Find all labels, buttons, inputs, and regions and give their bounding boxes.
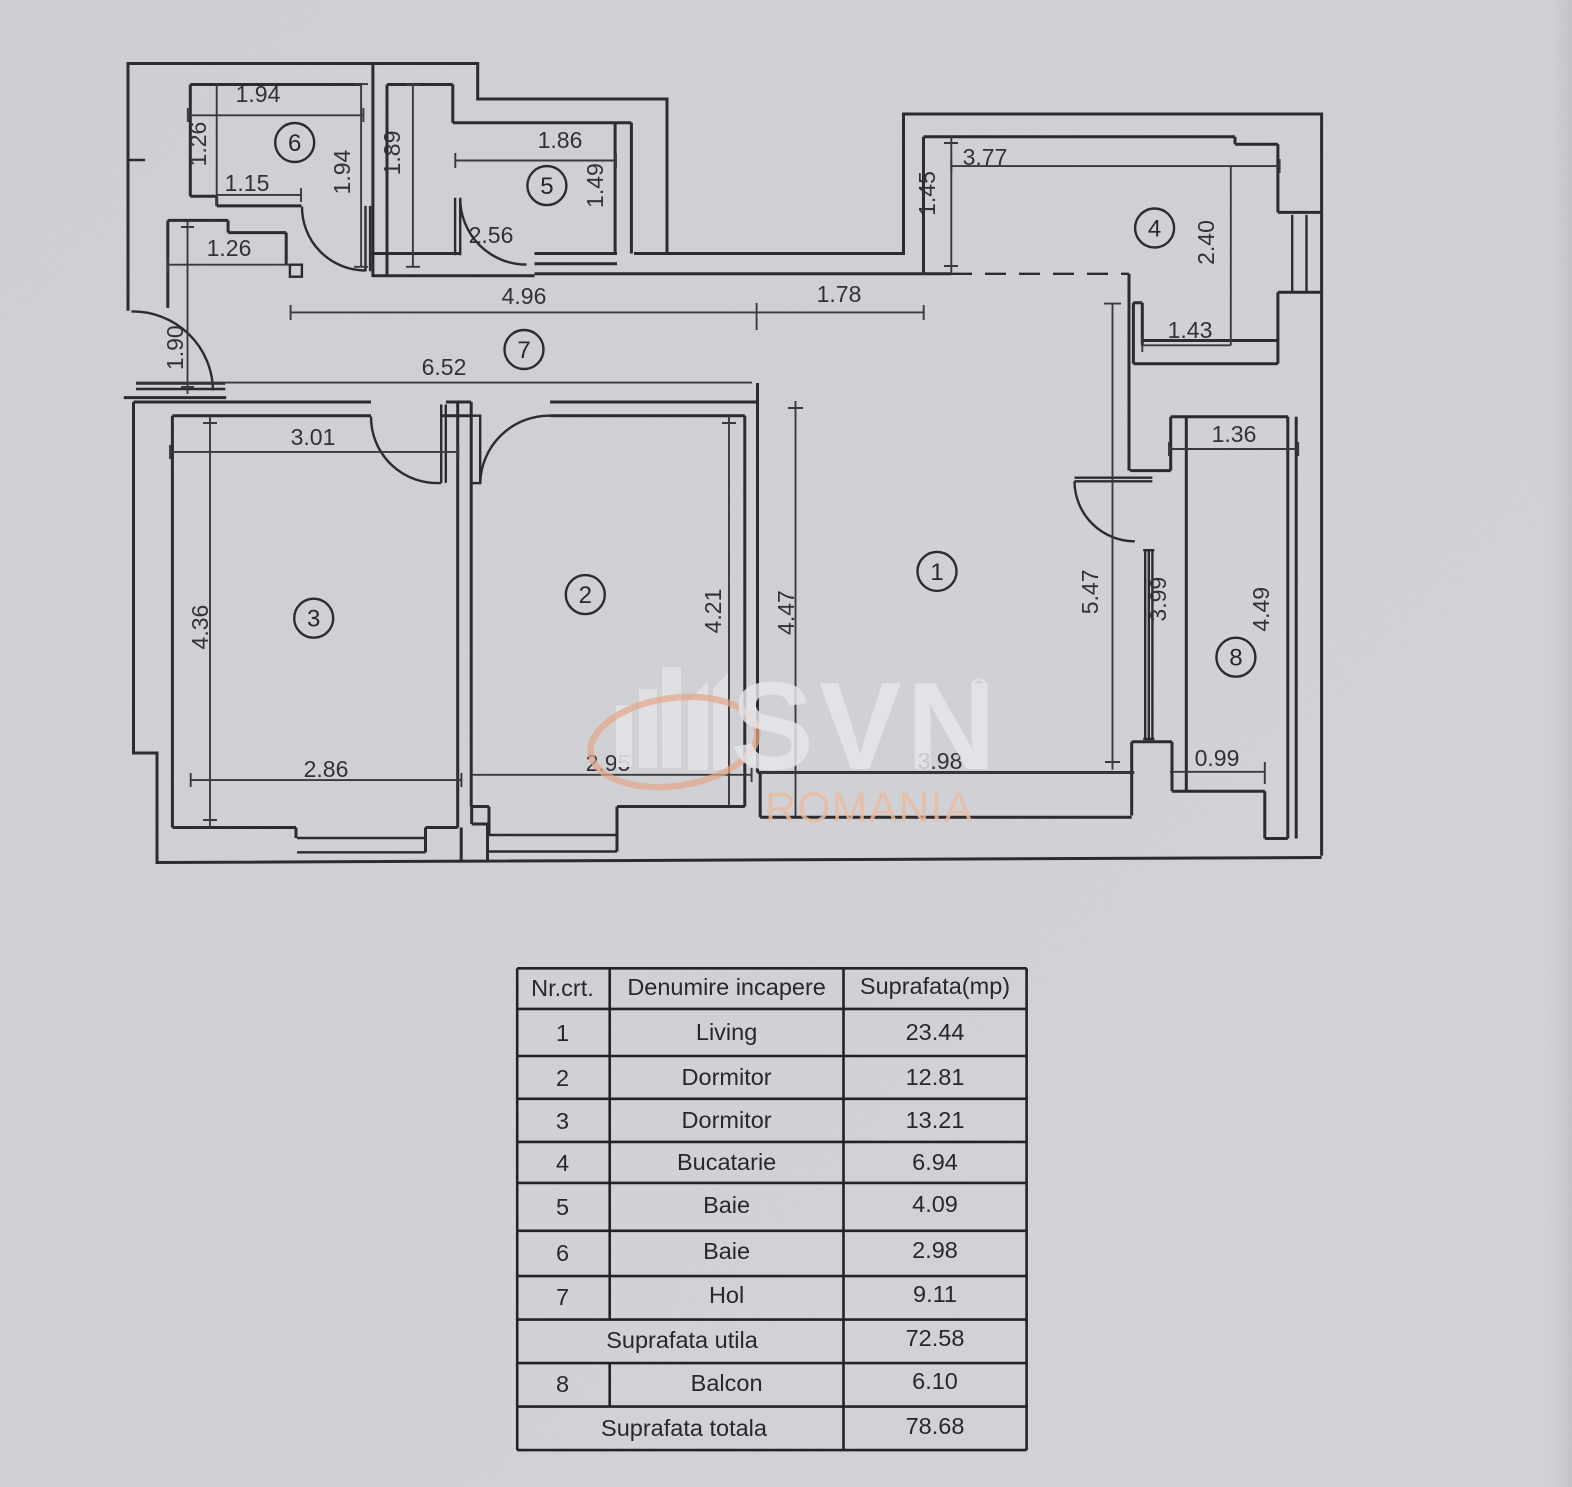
svg-text:12.81: 12.81 [906,1064,965,1090]
svg-text:Dormitor: Dormitor [682,1064,772,1090]
svg-text:2.86: 2.86 [304,756,349,782]
svg-text:5.47: 5.47 [1077,570,1103,615]
svg-text:Living: Living [696,1019,757,1045]
svg-text:6: 6 [556,1240,569,1266]
svg-text:4.96: 4.96 [502,283,547,309]
svg-text:6.10: 6.10 [912,1368,958,1394]
svg-text:8: 8 [1229,645,1242,672]
svg-text:1: 1 [930,559,943,586]
svg-text:72.58: 72.58 [906,1325,965,1351]
svg-text:Baie: Baie [703,1192,750,1218]
svg-text:1.94: 1.94 [329,150,355,195]
svg-text:Suprafata utila: Suprafata utila [606,1327,758,1353]
svg-text:2: 2 [579,582,592,609]
svg-text:Dormitor: Dormitor [682,1107,772,1133]
svg-text:2.98: 2.98 [912,1237,958,1263]
svg-text:Baie: Baie [703,1238,750,1264]
svg-text:4.21: 4.21 [700,589,726,634]
svg-text:6.94: 6.94 [912,1149,958,1175]
svg-text:1.26: 1.26 [207,235,252,261]
svg-text:4.49: 4.49 [1248,587,1274,632]
svg-text:3.01: 3.01 [291,424,336,450]
svg-text:7: 7 [556,1284,569,1310]
svg-text:3.99: 3.99 [1145,577,1171,622]
svg-text:Suprafata totala: Suprafata totala [601,1415,768,1441]
svg-text:4.09: 4.09 [912,1191,958,1217]
svg-text:SVN: SVN [731,658,1001,796]
svg-text:1.94: 1.94 [236,81,281,107]
svg-text:2.40: 2.40 [1193,220,1219,265]
svg-text:1.36: 1.36 [1212,421,1257,447]
svg-text:2: 2 [556,1065,569,1091]
svg-text:23.44: 23.44 [906,1019,965,1045]
svg-text:1.15: 1.15 [225,170,270,196]
svg-text:4: 4 [1148,216,1161,243]
svg-text:1: 1 [556,1020,569,1046]
svg-text:1.43: 1.43 [1168,317,1213,343]
svg-text:3: 3 [556,1108,569,1134]
svg-text:6: 6 [288,130,301,157]
svg-text:1.86: 1.86 [538,127,583,153]
svg-text:Nr.crt.: Nr.crt. [531,975,594,1001]
svg-text:5: 5 [556,1194,569,1220]
svg-text:0.99: 0.99 [1195,745,1240,771]
svg-text:1.45: 1.45 [914,171,940,216]
svg-text:1.90: 1.90 [162,325,188,370]
svg-text:1.89: 1.89 [379,131,405,176]
svg-text:4.47: 4.47 [773,590,799,635]
svg-text:1.78: 1.78 [817,281,862,307]
svg-text:Balcon: Balcon [691,1370,763,1396]
svg-text:13.21: 13.21 [906,1107,965,1133]
svg-text:1.26: 1.26 [185,122,211,167]
svg-text:3: 3 [307,606,320,633]
svg-text:Bucatarie: Bucatarie [677,1149,776,1175]
svg-text:1.49: 1.49 [582,163,608,208]
svg-text:Denumire incapere: Denumire incapere [627,974,826,1000]
svg-text:4: 4 [556,1150,569,1176]
svg-text:ROMANIA: ROMANIA [765,785,974,832]
svg-text:6.52: 6.52 [422,354,467,380]
svg-text:78.68: 78.68 [906,1413,965,1439]
svg-text:3.77: 3.77 [963,144,1008,170]
svg-text:Hol: Hol [709,1282,744,1308]
svg-text:Suprafata(mp): Suprafata(mp) [860,973,1010,999]
svg-text:2.56: 2.56 [469,222,514,248]
svg-text:7: 7 [517,337,530,364]
svg-text:4.36: 4.36 [187,605,213,650]
svg-text:9.11: 9.11 [913,1281,957,1307]
svg-text:8: 8 [556,1371,569,1397]
svg-text:5: 5 [540,173,553,200]
